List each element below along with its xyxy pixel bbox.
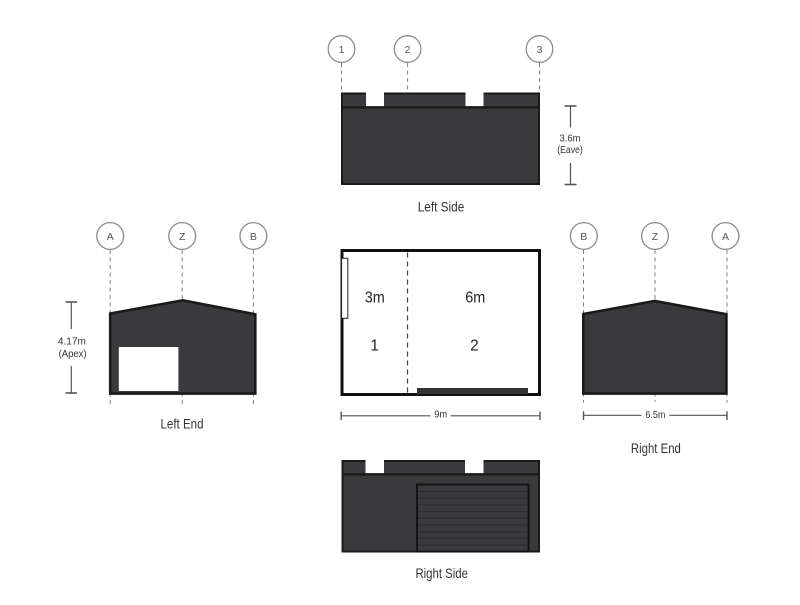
svg-text:A: A bbox=[722, 231, 729, 243]
svg-text:A: A bbox=[107, 231, 114, 243]
svg-text:B: B bbox=[580, 231, 587, 243]
svg-text:4.17m: 4.17m bbox=[58, 337, 86, 348]
svg-text:9m: 9m bbox=[434, 409, 447, 420]
svg-text:3: 3 bbox=[537, 44, 543, 56]
svg-text:2: 2 bbox=[470, 338, 479, 355]
svg-text:B: B bbox=[250, 231, 257, 243]
svg-text:3m: 3m bbox=[365, 290, 385, 307]
svg-text:Right End: Right End bbox=[631, 440, 681, 456]
svg-text:Left End: Left End bbox=[161, 415, 204, 431]
svg-text:Right Side: Right Side bbox=[415, 565, 468, 581]
svg-text:3.6m: 3.6m bbox=[560, 134, 581, 145]
svg-text:1: 1 bbox=[370, 338, 379, 355]
svg-text:6.5m: 6.5m bbox=[645, 410, 665, 421]
svg-text:Left Side: Left Side bbox=[418, 198, 465, 214]
svg-text:1: 1 bbox=[339, 44, 345, 56]
svg-text:6m: 6m bbox=[465, 290, 485, 307]
svg-text:2: 2 bbox=[405, 44, 411, 56]
svg-text:Z: Z bbox=[179, 231, 186, 243]
svg-text:(Eave): (Eave) bbox=[557, 145, 583, 156]
svg-text:Z: Z bbox=[652, 231, 659, 243]
svg-text:(Apex): (Apex) bbox=[59, 349, 87, 360]
